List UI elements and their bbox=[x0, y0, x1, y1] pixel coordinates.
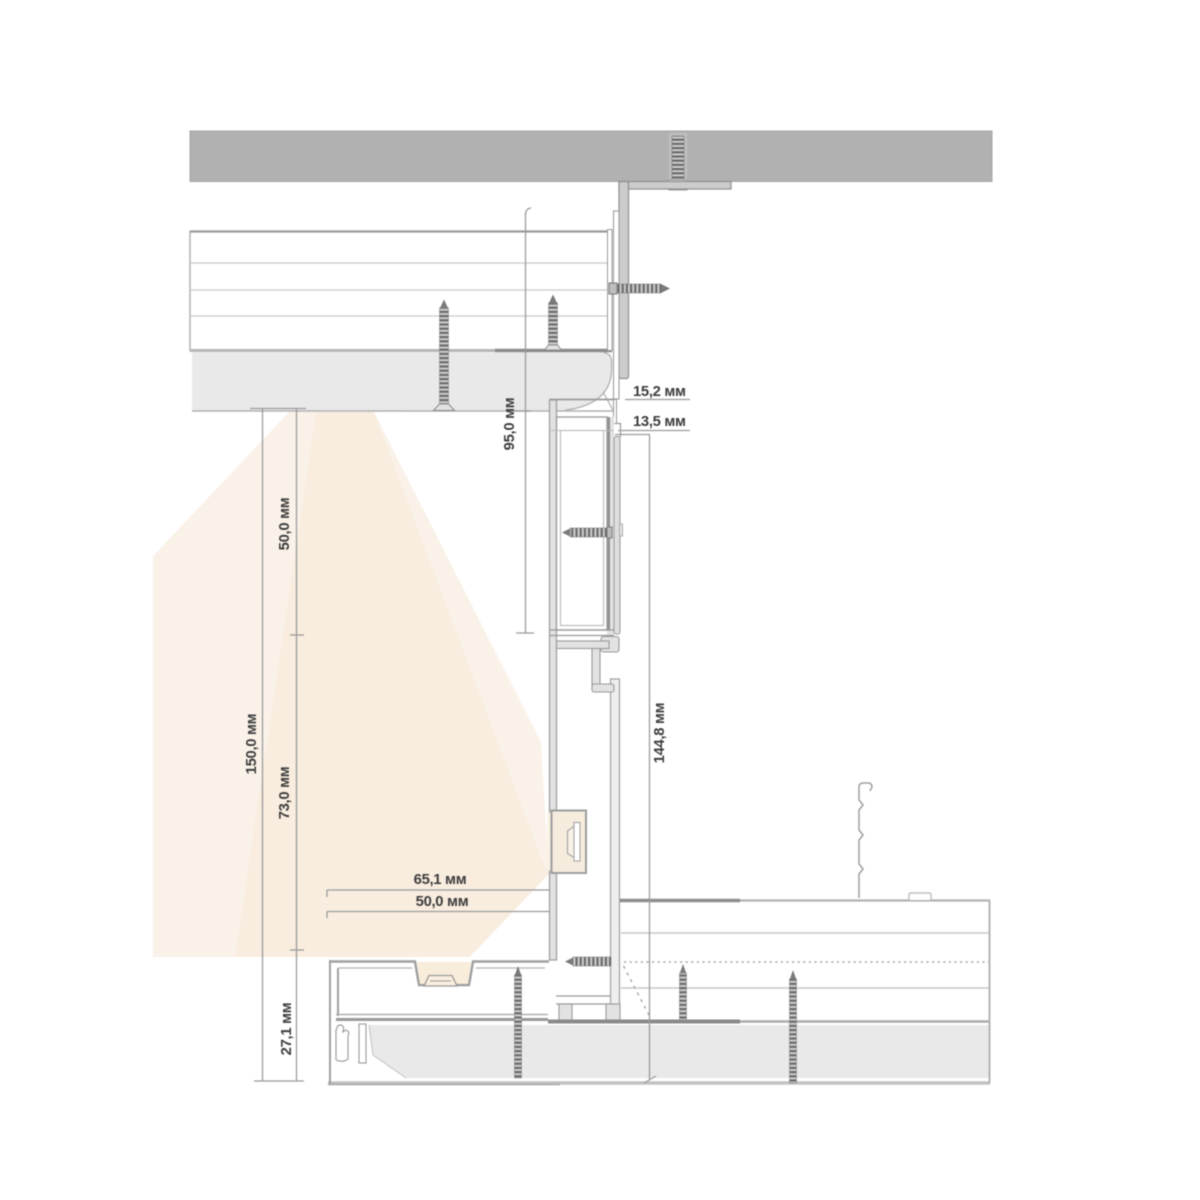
svg-text:50,0 мм: 50,0 мм bbox=[277, 498, 293, 551]
svg-text:50,0 мм: 50,0 мм bbox=[416, 894, 469, 910]
svg-text:95,0 мм: 95,0 мм bbox=[502, 398, 518, 451]
svg-text:13,5 мм: 13,5 мм bbox=[633, 414, 686, 430]
svg-text:15,2 мм: 15,2 мм bbox=[633, 384, 686, 400]
svg-text:65,1 мм: 65,1 мм bbox=[414, 872, 467, 888]
svg-text:144,8 мм: 144,8 мм bbox=[652, 703, 668, 764]
svg-text:73,0 мм: 73,0 мм bbox=[277, 767, 293, 820]
svg-text:150,0 мм: 150,0 мм bbox=[244, 714, 260, 775]
svg-text:27,1 мм: 27,1 мм bbox=[279, 1003, 295, 1056]
